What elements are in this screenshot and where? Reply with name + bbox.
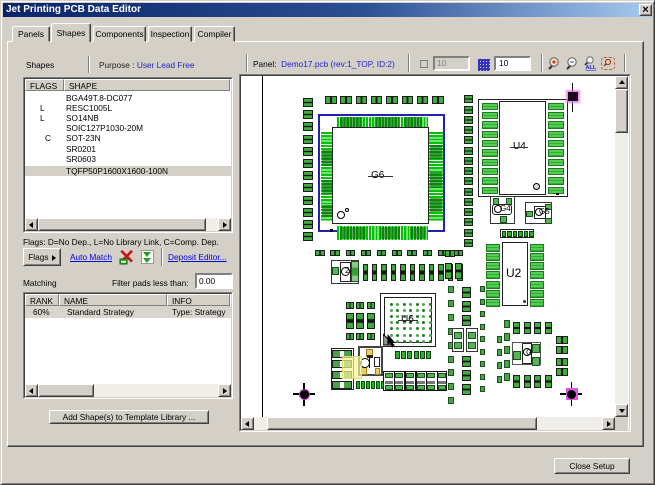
svg-text:ALL: ALL [586,65,597,71]
